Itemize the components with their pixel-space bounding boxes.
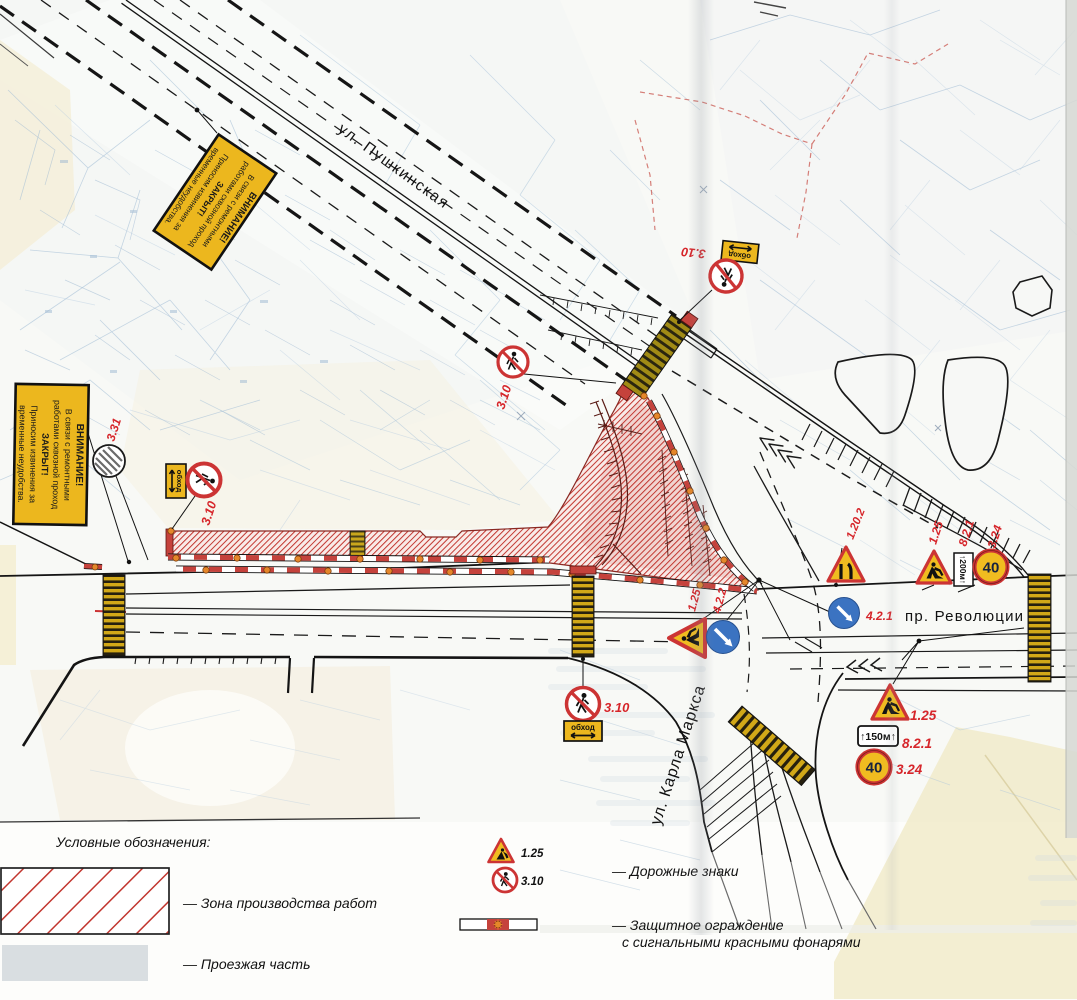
- svg-text:↑200м↑: ↑200м↑: [958, 555, 968, 584]
- svg-text:временные неудобства.: временные неудобства.: [16, 405, 28, 503]
- svg-text:3.10: 3.10: [604, 700, 630, 715]
- svg-text:работами сквозной проход: работами сквозной проход: [51, 400, 63, 509]
- svg-text:3.10: 3.10: [521, 876, 544, 888]
- svg-text:8.2.1: 8.2.1: [902, 736, 932, 751]
- svg-text:— Проезжая часть: — Проезжая часть: [182, 956, 310, 972]
- svg-text:обход: обход: [175, 470, 184, 493]
- svg-text:40: 40: [866, 760, 883, 777]
- svg-text:1.25: 1.25: [521, 848, 544, 860]
- svg-text:В связи с ремонтными: В связи с ремонтными: [62, 409, 74, 501]
- svg-text:40: 40: [983, 560, 1000, 577]
- svg-text:— Дорожные знаки: — Дорожные знаки: [611, 863, 739, 879]
- svg-text:Условные обозначения:: Условные обозначения:: [55, 834, 211, 850]
- svg-text:ВНИМАНИЕ!: ВНИМАНИЕ!: [73, 424, 85, 487]
- svg-text:Приносим извинения за: Приносим извинения за: [28, 405, 40, 503]
- svg-text:— Зона производства работ: — Зона производства работ: [182, 895, 377, 911]
- svg-text:пр. Революции: пр. Революции: [905, 608, 1024, 625]
- svg-text:с сигнальными красными фона: с сигнальными красными фонарями: [622, 934, 861, 950]
- svg-text:обход: обход: [571, 723, 595, 732]
- svg-text:1.25: 1.25: [910, 708, 937, 723]
- svg-text:ЗАКРЫТ!: ЗАКРЫТ!: [40, 433, 52, 476]
- svg-text:3.24: 3.24: [896, 762, 923, 777]
